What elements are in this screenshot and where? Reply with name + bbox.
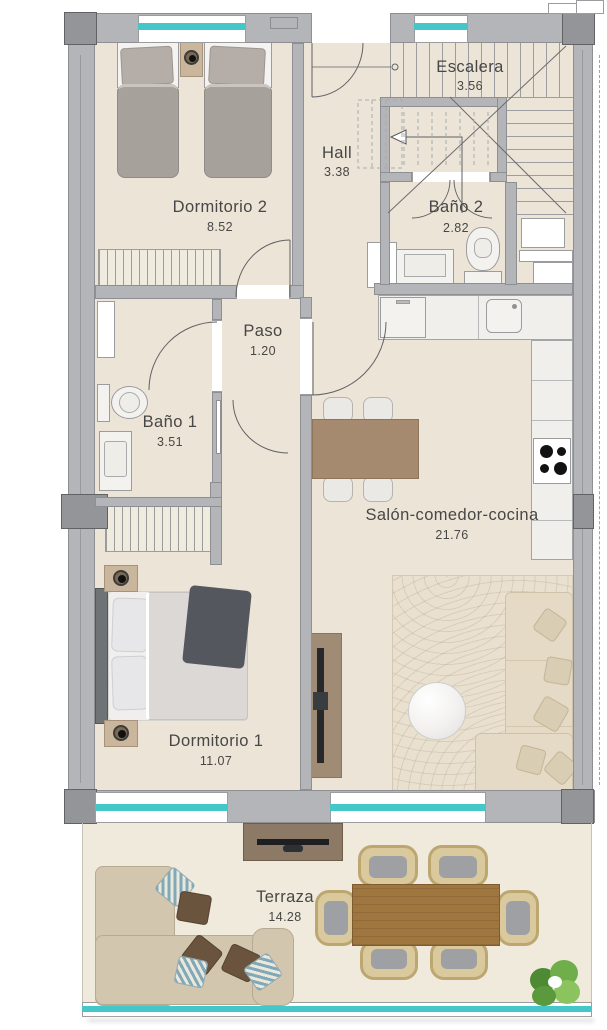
room-label-hall: Hall [322, 144, 352, 163]
entry-door-arc [312, 43, 398, 97]
bano1-door-arc [149, 322, 217, 390]
stair-dashed-flight [358, 100, 488, 168]
room-label-dormitorio1: Dormitorio 1 [169, 732, 264, 751]
room-area-dormitorio1: 11.07 [200, 754, 232, 768]
room-area-terraza: 14.28 [268, 910, 301, 924]
room-area-escalera: 3.56 [457, 79, 483, 93]
room-label-dormitorio2: Dormitorio 2 [173, 198, 268, 217]
room-area-bano2: 2.82 [443, 221, 469, 235]
room-label-escalera: Escalera [436, 58, 503, 77]
room-label-bano1: Baño 1 [143, 413, 198, 432]
room-area-dormitorio2: 8.52 [207, 220, 233, 234]
dorm2-door-arc [236, 240, 290, 297]
dorm1-door-arc [233, 400, 288, 453]
salon-door-arc [312, 322, 386, 395]
room-area-salon: 21.76 [435, 528, 468, 542]
room-area-paso: 1.20 [250, 344, 276, 358]
room-label-salon: Salón-comedor-cocina [365, 506, 538, 525]
room-label-terraza: Terraza [256, 888, 314, 907]
room-area-bano1: 3.51 [157, 435, 183, 449]
floor-plan: Dormitorio 2 8.52 Escalera 3.56 Hall 3.3… [0, 0, 607, 1030]
room-label-paso: Paso [243, 322, 282, 341]
room-area-hall: 3.38 [324, 165, 350, 179]
room-label-bano2: Baño 2 [429, 198, 484, 217]
